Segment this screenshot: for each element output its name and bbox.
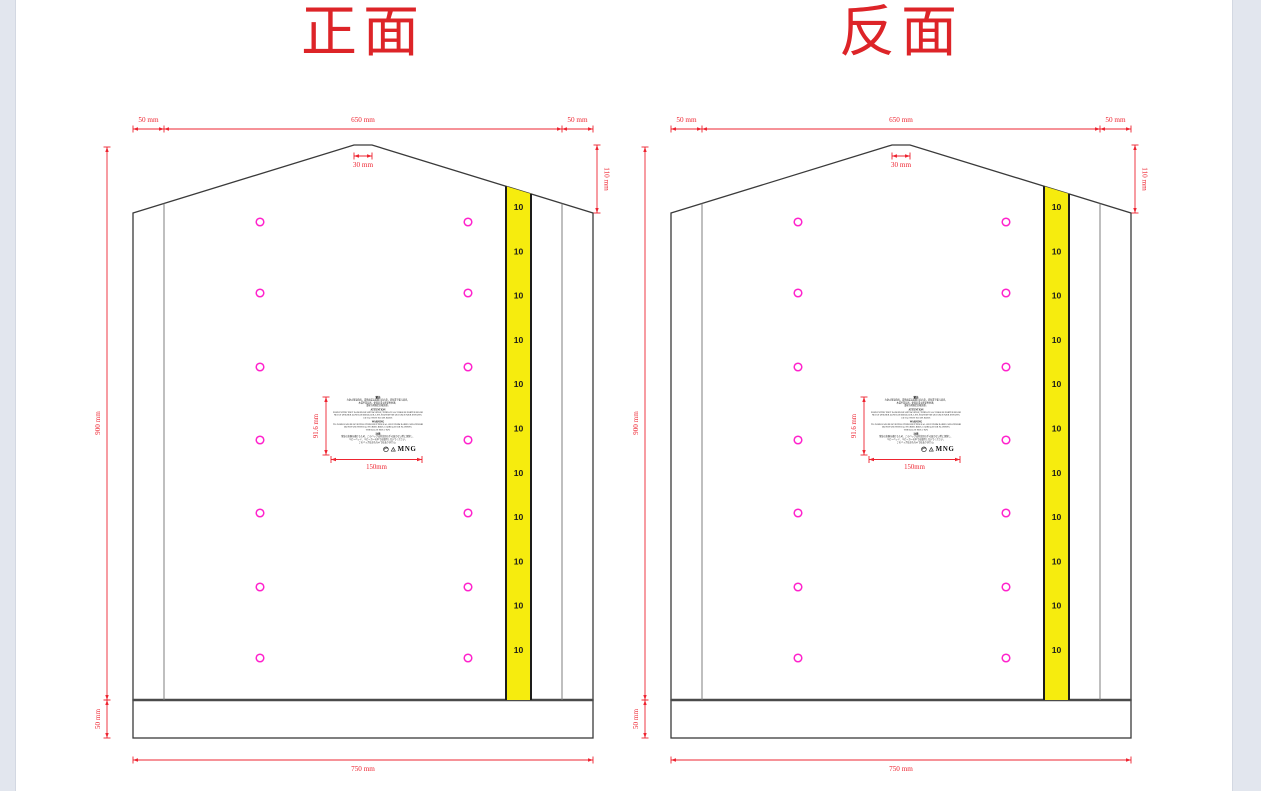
dimension-label: 650 mm [889,116,913,124]
size-tape-number: 10 [514,379,524,389]
bag-bottom-band [671,700,1131,738]
size-tape-number: 10 [514,335,524,345]
punch-hole [464,289,472,297]
dim-arrow [643,733,646,738]
dimension-label: 91.6 mm [851,413,858,438]
care-brand-row: MNG [333,445,423,453]
dimension-label: 50 mm [632,709,640,730]
dim-arrow [643,147,646,152]
size-tape-number: 10 [1052,424,1062,434]
care-text-line: 请按当地规定回收处理。 [871,405,961,408]
size-tape-number: 10 [1052,601,1062,611]
care-label-text: 警告为防止窒息危险，请将此袋远离婴儿和儿童，切勿置于婴儿床内，本袋不是玩具，使用… [871,396,961,453]
punch-hole [256,289,264,297]
dim-arrow [164,127,169,130]
dim-arrow [105,733,108,738]
care-text-line: このバッグはおもちゃではありません。 [333,441,423,444]
dim-arrow [1126,758,1131,761]
dimension-label: 91.6 mm [313,413,320,438]
dimension-label: 110 mm [1141,167,1149,191]
dim-arrow [697,127,702,130]
punch-hole [1002,218,1010,226]
dim-arrow [105,700,108,705]
care-text-line: THIS BAG IS NOT A TOY. [871,429,961,432]
dim-arrow [133,758,138,761]
dimension-label: 50 mm [138,116,159,124]
bag-bottom-band [133,700,593,738]
size-tape-number: 10 [1052,468,1062,478]
canvas-gutter-left [0,0,16,791]
punch-hole [1002,436,1010,444]
punch-hole [794,363,802,371]
size-tape-number: 10 [1052,556,1062,566]
punch-hole [256,583,264,591]
punch-hole [794,654,802,662]
green-dot-icon [921,446,927,452]
care-label: 警告为防止窒息危险，请将此袋远离婴儿和儿童，切勿置于婴儿床内，本袋不是玩具，使用… [871,394,961,458]
care-text-line: CE SAC N'EST PAS UN JOUET. [871,417,961,420]
punch-hole [794,218,802,226]
punch-hole [1002,654,1010,662]
care-text-line: 请按当地规定回收处理。 [333,405,423,408]
recycling-icon [928,447,933,452]
dim-arrow [643,700,646,705]
size-tape-number: 10 [514,556,524,566]
size-tape-number: 10 [1052,645,1062,655]
care-label-text: 警告为防止窒息危险，请将此袋远离婴儿和儿童，切勿置于婴儿床内，本袋不是玩具，使用… [333,396,423,453]
punch-hole [464,218,472,226]
dimension-label: 50 mm [94,709,102,730]
punch-hole [464,509,472,517]
punch-hole [256,654,264,662]
dimension-label: 50 mm [676,116,697,124]
size-tape [1044,186,1069,700]
punch-hole [464,436,472,444]
size-tape-number: 10 [1052,379,1062,389]
dim-arrow [1095,127,1100,130]
dim-arrow [702,127,707,130]
size-tape-number: 10 [1052,512,1062,522]
punch-hole [1002,363,1010,371]
dimension-label: 30 mm [891,161,912,169]
dim-arrow [1133,208,1136,213]
canvas-gutter-right [1232,0,1261,791]
dim-arrow [105,695,108,700]
care-text-line: このバッグはおもちゃではありません。 [871,441,961,444]
brand-name: MNG [936,445,955,453]
dimension-label: 50 mm [1105,116,1126,124]
care-text-line: THIS BAG IS NOT A TOY. [333,429,423,432]
dim-arrow [133,127,138,130]
punch-hole [794,436,802,444]
green-dot-icon [383,446,389,452]
size-tape-number: 10 [1052,202,1062,212]
recycling-icon [390,447,395,452]
dimension-label: 150mm [904,464,925,471]
punch-hole [256,218,264,226]
punch-hole [1002,509,1010,517]
dim-arrow [643,695,646,700]
punch-hole [794,509,802,517]
punch-hole [464,583,472,591]
dim-arrow [671,758,676,761]
size-tape-number: 10 [514,246,524,256]
size-tape-number: 10 [1052,291,1062,301]
size-tape-number: 10 [514,291,524,301]
punch-hole [1002,583,1010,591]
punch-hole [1002,289,1010,297]
dimension-label: 900 mm [94,411,102,435]
care-label: 警告为防止窒息危险，请将此袋远离婴儿和儿童，切勿置于婴儿床内，本袋不是玩具，使用… [333,394,423,458]
dim-arrow [105,147,108,152]
bag-drawing: 101010101010101010101050 mm650 mm50 mm30… [538,0,1198,791]
size-tape-number: 10 [514,601,524,611]
size-tape-number: 10 [514,645,524,655]
care-text-line: CE SAC N'EST PAS UN JOUET. [333,417,423,420]
size-tape-number: 10 [514,512,524,522]
size-tape-number: 10 [514,202,524,212]
care-brand-row: MNG [871,445,961,453]
dimension-label: 30 mm [353,161,374,169]
bag-diagram-back: 反面 101010101010101010101050 mm650 mm50 m… [538,0,1198,791]
punch-hole [256,363,264,371]
dim-arrow [1100,127,1105,130]
punch-hole [464,363,472,371]
dimension-label: 900 mm [632,411,640,435]
punch-hole [794,583,802,591]
size-tape-number: 10 [514,468,524,478]
punch-hole [464,654,472,662]
size-tape [506,186,531,700]
size-tape-number: 10 [1052,246,1062,256]
dimension-label: 750 mm [889,765,913,773]
brand-name: MNG [398,445,417,453]
dimension-label: 750 mm [351,765,375,773]
punch-hole [256,509,264,517]
dim-arrow [159,127,164,130]
punch-hole [256,436,264,444]
size-tape-number: 10 [1052,335,1062,345]
dimension-label: 150mm [366,464,387,471]
dimension-label: 650 mm [351,116,375,124]
dim-arrow [1133,145,1136,150]
size-tape-number: 10 [514,424,524,434]
dim-arrow [1126,127,1131,130]
dim-arrow [671,127,676,130]
punch-hole [794,289,802,297]
